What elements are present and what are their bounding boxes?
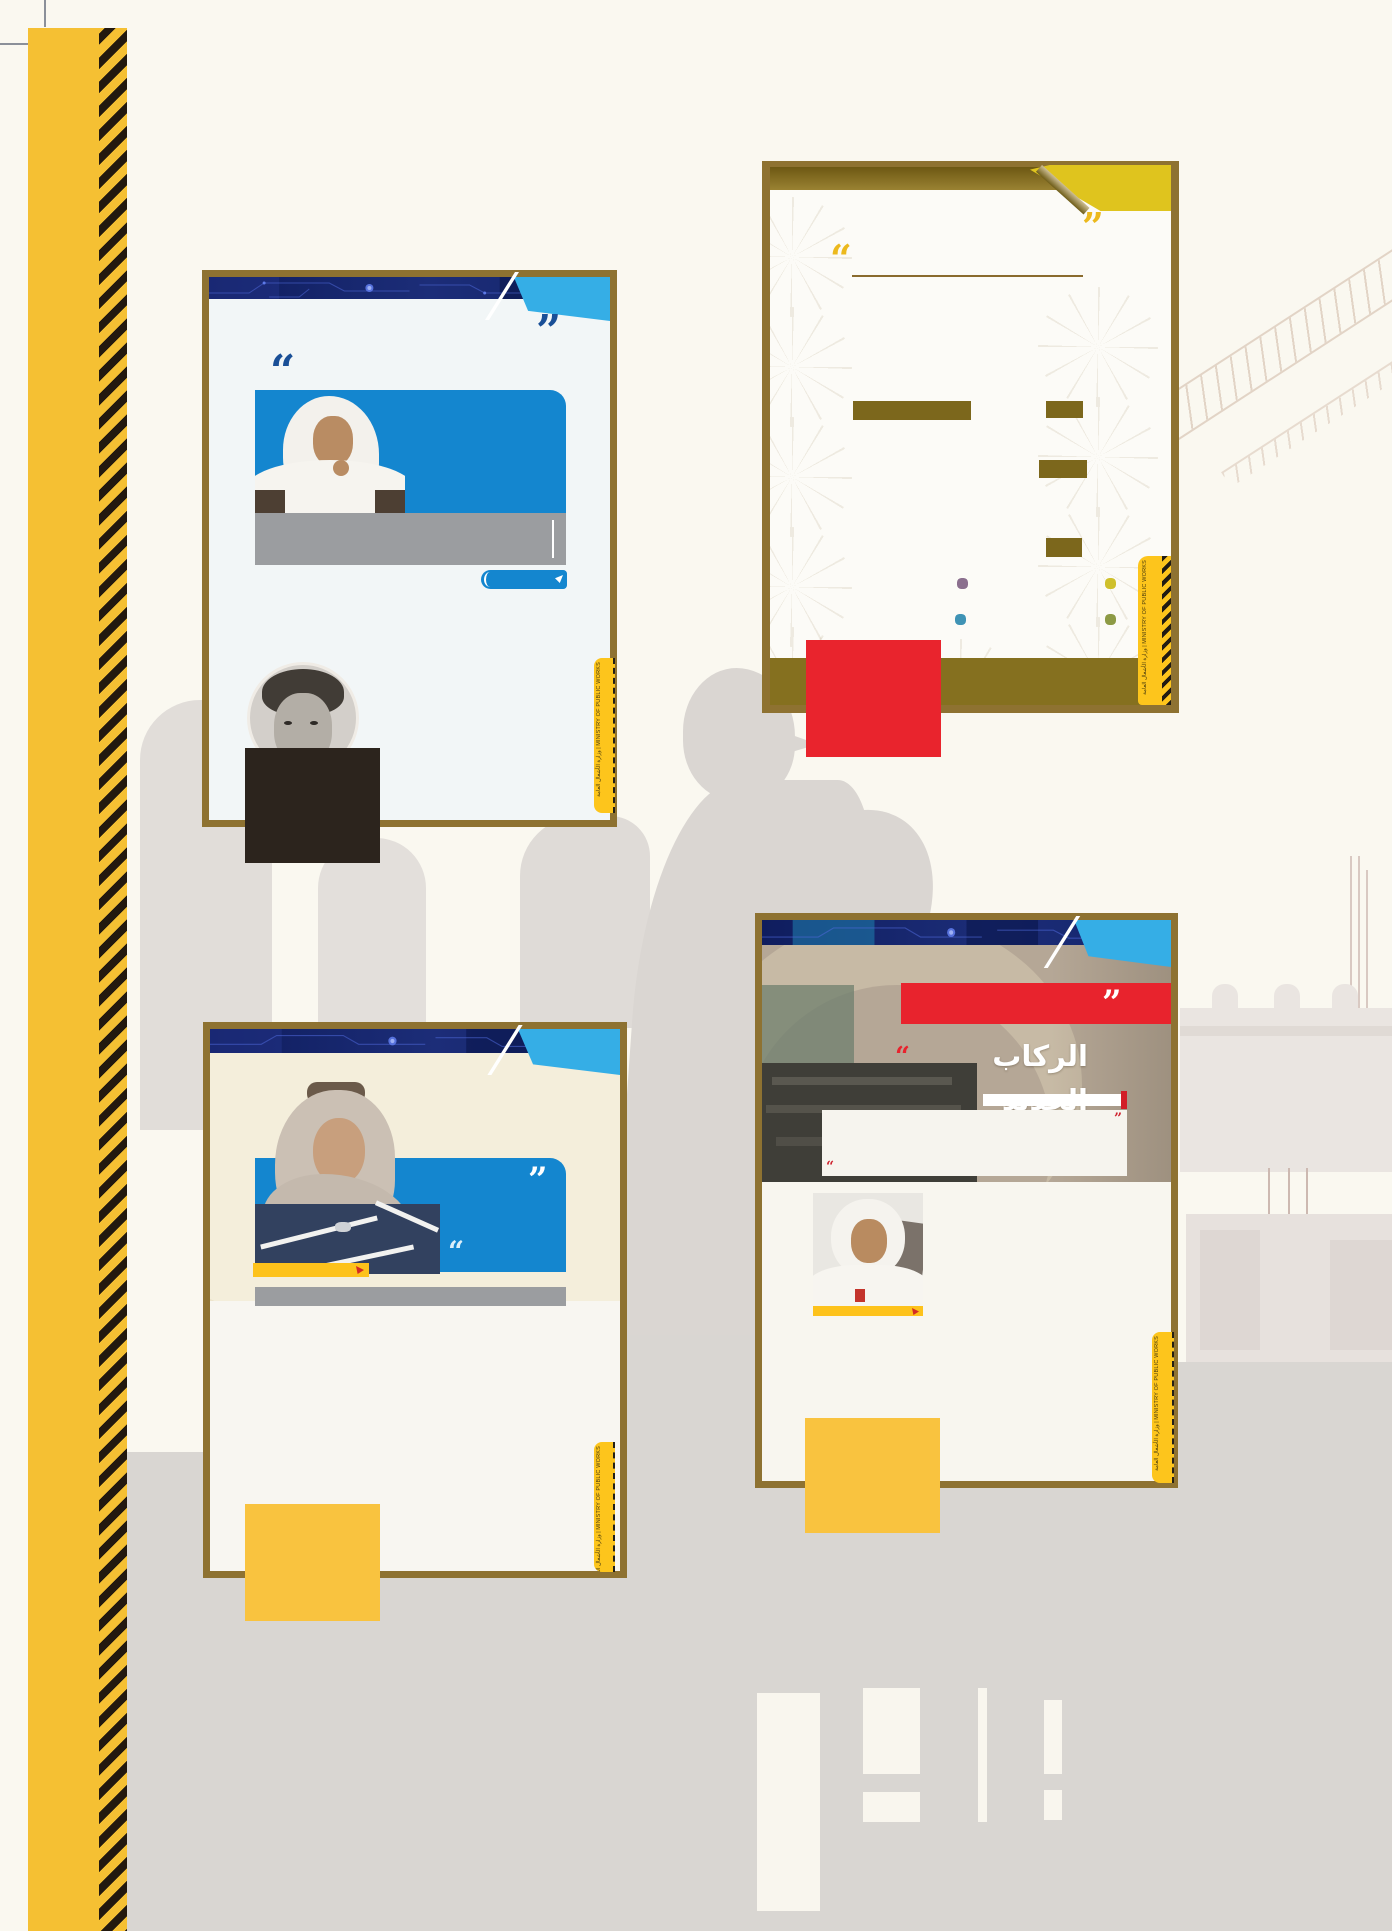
- redacted-heading-bar: [1039, 460, 1087, 478]
- necklace: [335, 1222, 351, 1232]
- pill-arc: [484, 572, 496, 587]
- quote-text-box: ” “: [822, 1110, 1127, 1176]
- badge-icon: [1105, 578, 1116, 589]
- face: [851, 1219, 887, 1263]
- ministry-ribbon-tab: وزارة الأشغال العامة | MINISTRY OF PUBLI…: [594, 658, 615, 813]
- face: [313, 416, 353, 466]
- quote-close-glyph: ”: [1082, 208, 1104, 246]
- geometric-pattern: [1038, 287, 1158, 407]
- geometric-pattern: [762, 417, 852, 537]
- hazard-spine: [28, 28, 127, 1931]
- redacted-heading-bar: [1046, 401, 1083, 418]
- name-bar: [253, 1263, 369, 1277]
- red-accent-square: [806, 640, 941, 757]
- geometric-pattern: [762, 307, 852, 427]
- redacted-heading-bar: [853, 401, 971, 420]
- subtitle-bar: [983, 1094, 1122, 1106]
- hand: [333, 460, 349, 476]
- window-light-shape: [978, 1688, 987, 1822]
- name-bar: [813, 1306, 923, 1316]
- bridge-cable: [1366, 870, 1368, 1008]
- scaffold-silhouette: [1200, 1230, 1260, 1350]
- caption-divider: [552, 520, 554, 558]
- window-light-shape: [757, 1693, 820, 1911]
- quote-open-glyph: “: [895, 1044, 910, 1070]
- quote-open-glyph: “: [830, 240, 852, 278]
- cursor-arrow-icon: [912, 1308, 919, 1315]
- glass-wall: [762, 985, 854, 1065]
- worker-silhouette: [520, 816, 650, 1028]
- eye: [310, 721, 318, 725]
- article-title: الركاب الجديد: [918, 1034, 1088, 1078]
- bird-icon: [555, 575, 563, 583]
- signature-pill: [481, 570, 567, 589]
- background-gray-region: [617, 1335, 767, 1931]
- yellow-accent-square: [805, 1418, 940, 1533]
- window-light-shape: [1044, 1700, 1062, 1774]
- ministry-ribbon-tab: وزارة الأشغال العامة | MINISTRY OF PUBLI…: [1152, 1332, 1174, 1483]
- quote-close-glyph: ”: [528, 1163, 548, 1197]
- window-light-shape: [863, 1688, 920, 1774]
- yellow-accent-square: [245, 1504, 380, 1621]
- badge-icon: [957, 578, 968, 589]
- crop-mark-horizontal: [0, 43, 29, 45]
- quote-close-glyph: ”: [1114, 1112, 1122, 1126]
- chair-arm: [375, 490, 405, 513]
- chair-arm: [255, 490, 285, 513]
- crop-mark-vertical: [44, 0, 46, 27]
- seat-row: [772, 1077, 952, 1085]
- worker-silhouette: [318, 838, 426, 1028]
- background-gray-region: [1178, 1362, 1392, 1931]
- interviewee-photo: [255, 390, 405, 513]
- cursor-arrow-icon: [356, 1266, 364, 1274]
- scaffold-silhouette: [1330, 1240, 1392, 1350]
- quote-close-glyph: ”: [1102, 986, 1122, 1020]
- ministry-ribbon-label: وزارة الأشغال العامة | MINISTRY OF PUBLI…: [596, 662, 602, 797]
- interviewee-photo: [255, 1082, 440, 1274]
- badge-icon: [955, 614, 966, 625]
- ministry-ribbon-label: وزارة الأشغال العامة | MINISTRY OF PUBLI…: [1154, 1336, 1160, 1471]
- hazard-stripe-edge: [1162, 556, 1171, 705]
- caption-bar: [255, 1287, 566, 1306]
- dark-caption-block: [245, 748, 380, 863]
- window-light-shape: [863, 1792, 920, 1822]
- redacted-heading-bar: [1046, 538, 1082, 557]
- crane-lattice-sketch: [1155, 224, 1392, 441]
- ministry-ribbon-label: وزارة الأشغال العامة | MINISTRY OF PUBLI…: [1142, 560, 1148, 695]
- ministry-ribbon-tab: وزارة الأشغال العامة | MINISTRY OF PUBLI…: [1138, 556, 1171, 705]
- badge-icon: [1105, 614, 1116, 625]
- eye: [284, 721, 292, 725]
- window-light-shape: [1044, 1790, 1062, 1820]
- ministry-ribbon-tab: وزارة الأشغال العامة | MINISTRY OF PUBLI…: [594, 1442, 615, 1572]
- magazine-page: ” “ وزارة الأشغال العامة | MINISTRY OF P…: [0, 0, 1392, 1931]
- quote-close-glyph: ”: [536, 310, 561, 354]
- quote-open-glyph: “: [270, 350, 295, 394]
- caption-bar: [255, 513, 566, 565]
- hazard-stripes: [99, 28, 127, 1931]
- bridge-cable: [1306, 1168, 1308, 1216]
- headline-banner: [901, 983, 1171, 1024]
- subtitle-tick: [1121, 1091, 1127, 1109]
- ministry-ribbon-label: وزارة الأشغال العامة | MINISTRY OF PUBLI…: [596, 1446, 602, 1572]
- bridge-cable: [1288, 1168, 1290, 1216]
- interviewee-photo: [813, 1193, 923, 1315]
- bridge-cable: [1268, 1168, 1270, 1216]
- bridge-cable: [1358, 856, 1360, 1008]
- headline-underline: [852, 275, 1083, 277]
- card-top-right: [762, 161, 1179, 713]
- id-badge: [855, 1289, 865, 1302]
- quote-open-glyph: “: [826, 1160, 834, 1174]
- quote-open-glyph: “: [448, 1238, 464, 1266]
- bridge-deck-shadowline: [1180, 1026, 1392, 1036]
